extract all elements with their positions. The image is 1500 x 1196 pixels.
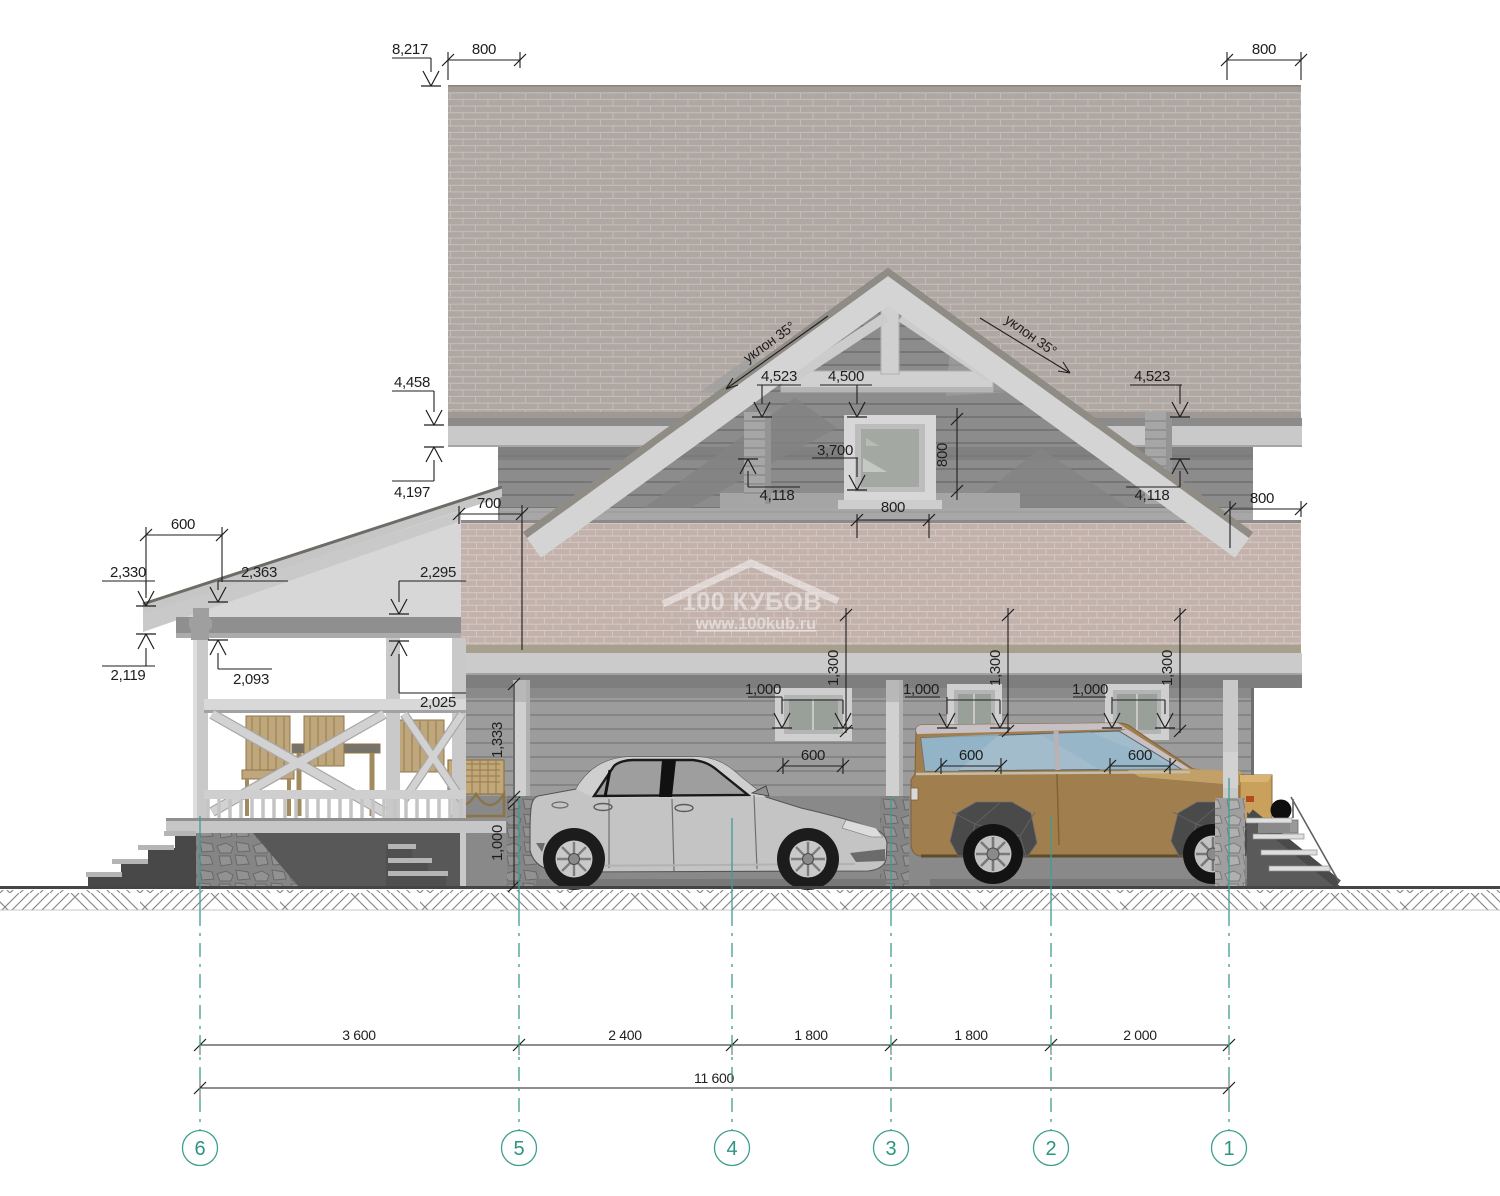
svg-text:800: 800 bbox=[934, 443, 951, 467]
svg-text:www.100kub.ru: www.100kub.ru bbox=[695, 615, 816, 633]
svg-text:600: 600 bbox=[959, 747, 983, 764]
svg-text:4,458: 4,458 bbox=[394, 374, 430, 391]
svg-text:1,000: 1,000 bbox=[1072, 681, 1108, 698]
svg-text:1,000: 1,000 bbox=[489, 825, 506, 861]
svg-text:1,333: 1,333 bbox=[489, 722, 506, 758]
svg-text:600: 600 bbox=[171, 516, 195, 533]
svg-text:3 600: 3 600 bbox=[342, 1027, 376, 1043]
svg-text:1,000: 1,000 bbox=[903, 681, 939, 698]
svg-text:2,330: 2,330 bbox=[110, 564, 146, 581]
svg-text:1,300: 1,300 bbox=[825, 650, 842, 686]
svg-text:4,523: 4,523 bbox=[761, 368, 797, 385]
svg-text:2,025: 2,025 bbox=[420, 694, 456, 711]
svg-text:100 КУБОВ: 100 КУБОВ bbox=[682, 588, 822, 616]
svg-text:4: 4 bbox=[726, 1138, 737, 1160]
svg-text:4,118: 4,118 bbox=[760, 487, 795, 504]
svg-text:1,300: 1,300 bbox=[987, 650, 1004, 686]
svg-text:800: 800 bbox=[1252, 41, 1276, 58]
svg-text:1,000: 1,000 bbox=[745, 681, 781, 698]
svg-text:1: 1 bbox=[1223, 1138, 1234, 1160]
svg-text:800: 800 bbox=[881, 499, 905, 516]
svg-text:8,217: 8,217 bbox=[392, 41, 428, 58]
svg-text:1 800: 1 800 bbox=[954, 1027, 988, 1043]
svg-text:2,093: 2,093 bbox=[233, 671, 269, 688]
svg-text:4,197: 4,197 bbox=[394, 484, 430, 501]
svg-text:3,700: 3,700 bbox=[817, 442, 853, 459]
svg-text:3: 3 bbox=[885, 1138, 896, 1160]
svg-text:800: 800 bbox=[1250, 490, 1274, 507]
svg-text:600: 600 bbox=[1128, 747, 1152, 764]
svg-text:4,118: 4,118 bbox=[1135, 487, 1170, 504]
svg-text:700: 700 bbox=[477, 495, 501, 512]
svg-text:4,523: 4,523 bbox=[1134, 368, 1170, 385]
svg-text:800: 800 bbox=[472, 41, 496, 58]
svg-text:2 000: 2 000 bbox=[1123, 1027, 1157, 1043]
svg-text:2,363: 2,363 bbox=[241, 564, 277, 581]
svg-text:2,295: 2,295 bbox=[420, 564, 456, 581]
svg-text:5: 5 bbox=[513, 1138, 524, 1160]
svg-text:2: 2 bbox=[1045, 1138, 1056, 1160]
svg-text:4,500: 4,500 bbox=[828, 368, 864, 385]
svg-text:6: 6 bbox=[194, 1138, 205, 1160]
svg-text:2,119: 2,119 bbox=[111, 667, 146, 684]
svg-text:1,300: 1,300 bbox=[1159, 650, 1176, 686]
svg-text:600: 600 bbox=[801, 747, 825, 764]
svg-text:1 800: 1 800 bbox=[794, 1027, 828, 1043]
svg-text:11 600: 11 600 bbox=[694, 1070, 734, 1086]
svg-text:2 400: 2 400 bbox=[608, 1027, 642, 1043]
